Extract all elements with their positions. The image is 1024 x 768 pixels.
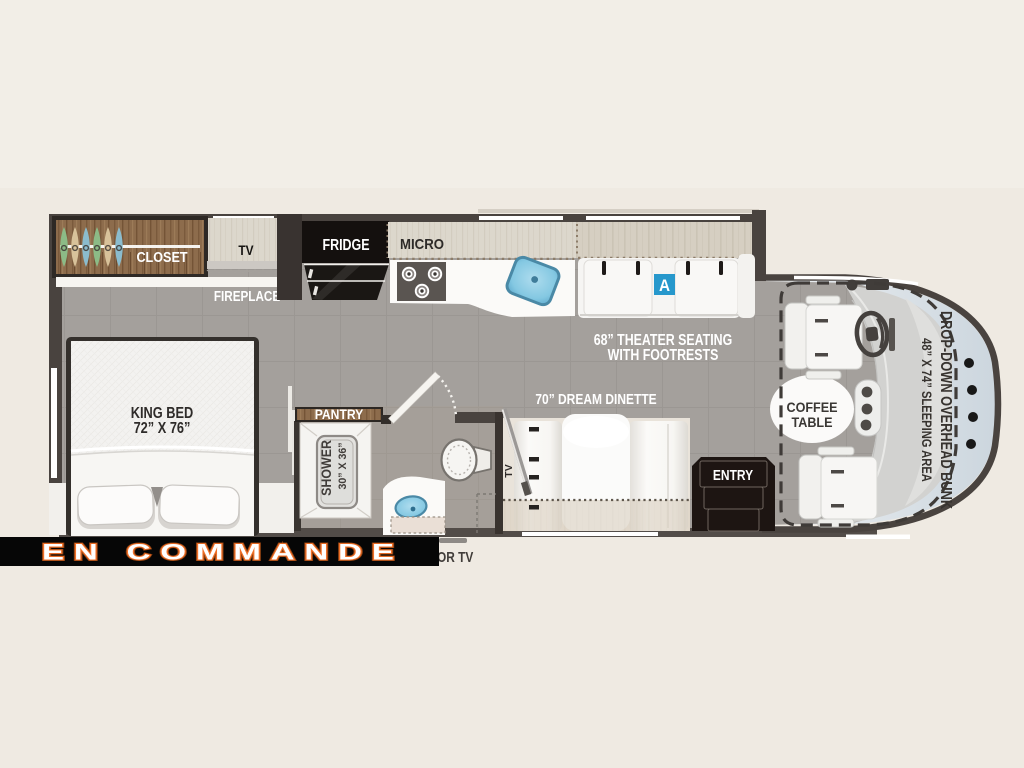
svg-text:MICRO: MICRO (400, 235, 444, 252)
svg-text:TABLE: TABLE (791, 414, 832, 430)
svg-text:TV: TV (238, 242, 254, 258)
svg-text:A: A (659, 276, 670, 295)
svg-text:70” DREAM DINETTE: 70” DREAM DINETTE (535, 391, 656, 408)
svg-text:OR TV: OR TV (437, 549, 473, 565)
svg-text:PANTRY: PANTRY (315, 406, 364, 422)
svg-text:TV: TV (503, 464, 515, 477)
svg-text:FIREPLACE: FIREPLACE (214, 288, 280, 305)
svg-text:48” X 74” SLEEPING AREA: 48” X 74” SLEEPING AREA (919, 338, 934, 482)
svg-text:FRIDGE: FRIDGE (322, 237, 369, 255)
svg-text:72” X 76”: 72” X 76” (134, 420, 191, 438)
svg-text:WITH FOOTRESTS: WITH FOOTRESTS (608, 346, 719, 364)
svg-text:EN COMMANDE: EN COMMANDE (42, 540, 404, 564)
svg-text:COFFEE: COFFEE (786, 399, 837, 415)
svg-text:CLOSET: CLOSET (136, 248, 188, 265)
svg-text:ENTRY: ENTRY (713, 467, 753, 484)
svg-text:DROP-DOWN OVERHEAD BUNK: DROP-DOWN OVERHEAD BUNK (937, 311, 955, 510)
svg-text:30” X 36”: 30” X 36” (337, 443, 349, 490)
svg-text:SHOWER: SHOWER (319, 439, 335, 495)
